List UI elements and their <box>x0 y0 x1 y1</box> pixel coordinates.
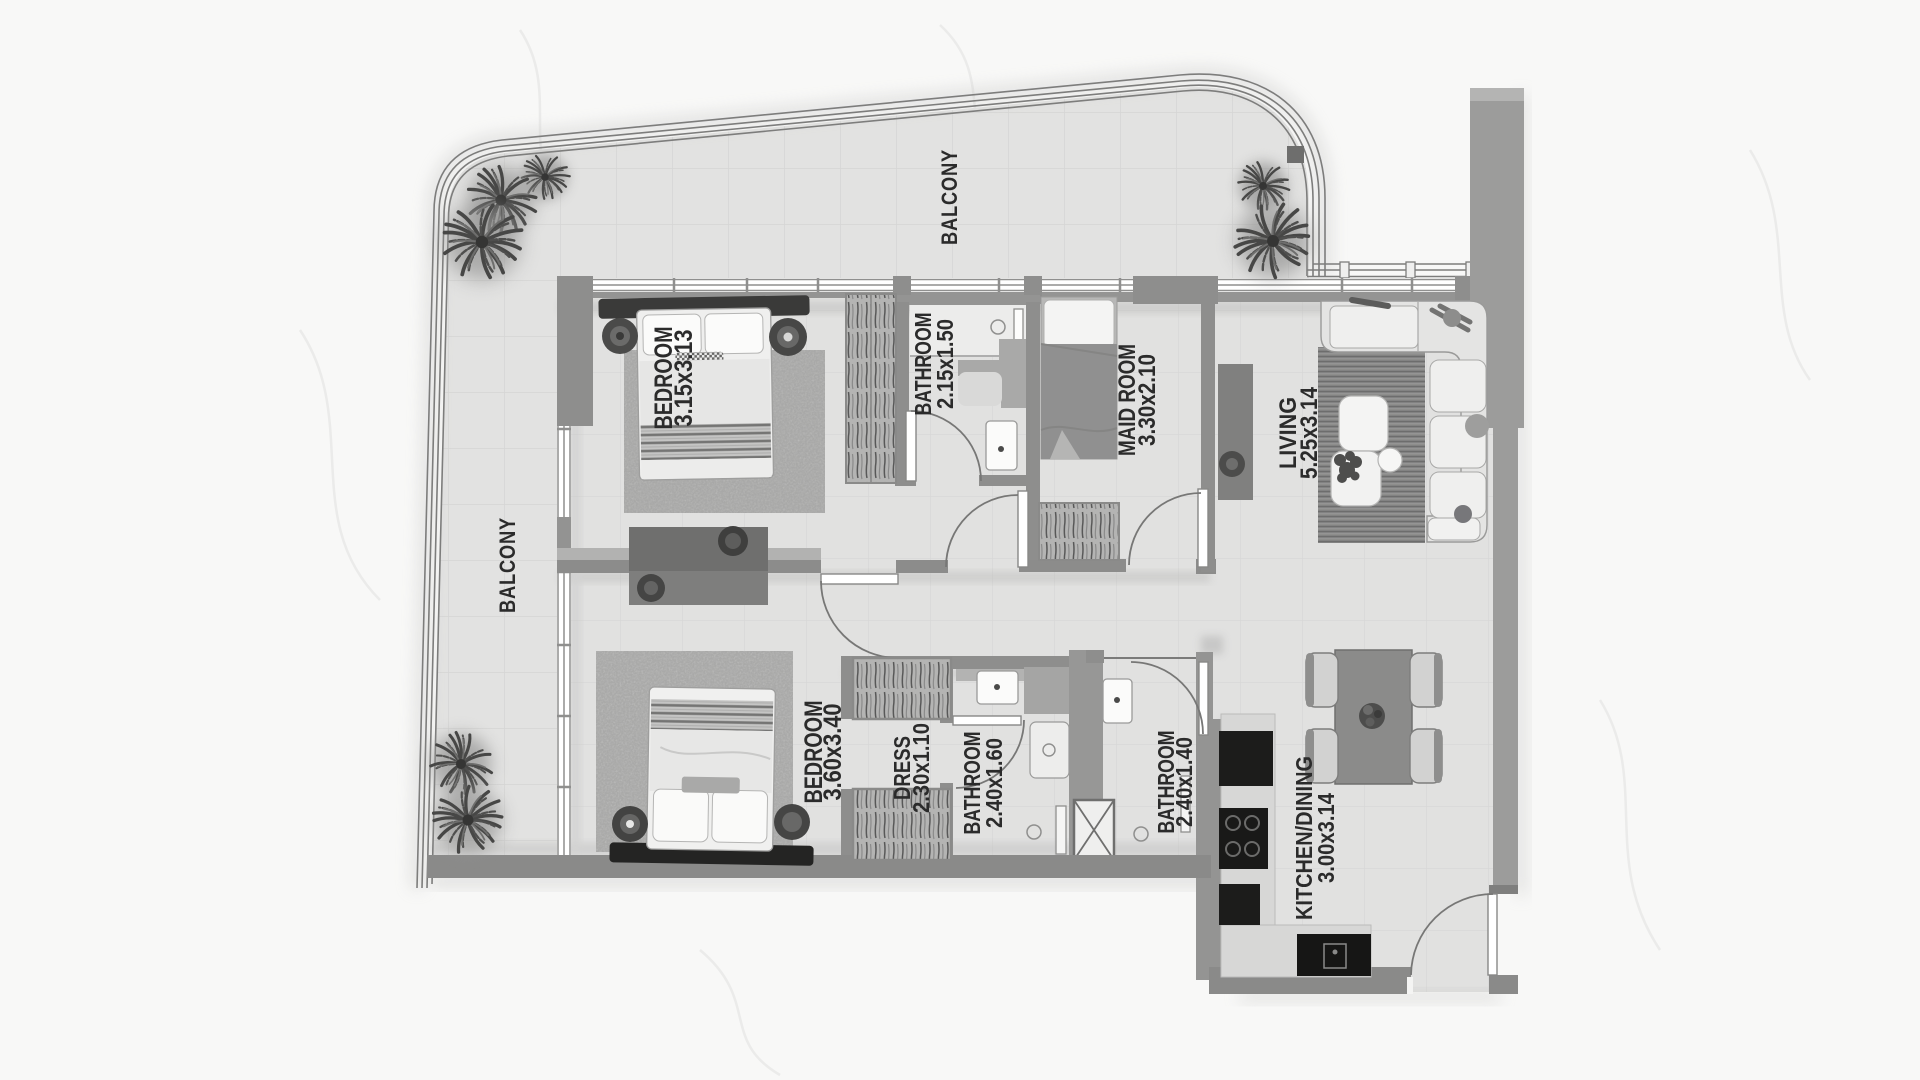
svg-text:BALCONY: BALCONY <box>937 149 962 245</box>
svg-text:2.30x1.10: 2.30x1.10 <box>908 723 934 813</box>
svg-text:5.25x3.14: 5.25x3.14 <box>1296 386 1323 479</box>
svg-text:2.40x1.40: 2.40x1.40 <box>1171 737 1197 827</box>
svg-text:3.15x3.13: 3.15x3.13 <box>670 330 698 427</box>
svg-text:3.30x2.10: 3.30x2.10 <box>1134 354 1161 446</box>
svg-text:2.40x1.60: 2.40x1.60 <box>981 738 1007 828</box>
svg-text:3.00x3.14: 3.00x3.14 <box>1313 793 1339 883</box>
svg-text:3.60x3.40: 3.60x3.40 <box>819 704 847 801</box>
svg-text:2.15x1.50: 2.15x1.50 <box>932 319 958 409</box>
svg-text:BALCONY: BALCONY <box>495 517 520 613</box>
